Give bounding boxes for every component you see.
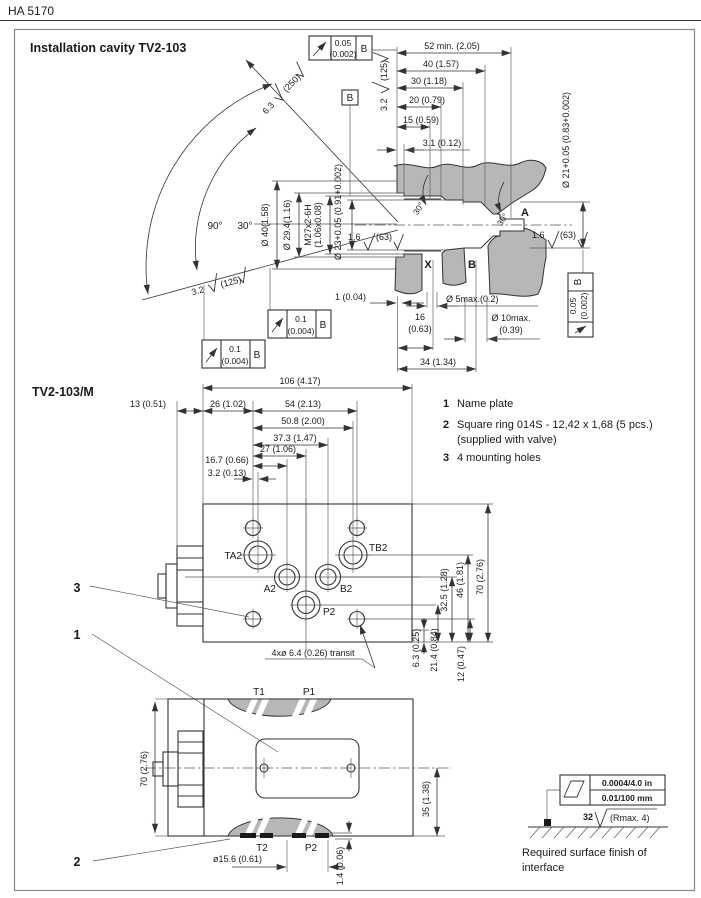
technical-drawing-page: HA 5170 Installation cavity TV2-103	[0, 0, 701, 898]
dim-30: 30 (1.18)	[411, 76, 447, 86]
callout-1: 1	[74, 628, 81, 642]
valve-body-outline	[203, 504, 412, 642]
doc-code: HA 5170	[8, 4, 54, 18]
cavity-lower-left-section	[395, 254, 422, 294]
dim-54: 54 (2.13)	[285, 399, 321, 409]
flatness-mm: 0.01/100 mm	[602, 793, 653, 803]
dim-214: 21.4 (0.84)	[429, 628, 439, 672]
port-p2b: P2	[305, 843, 318, 854]
callout-2: 2	[74, 855, 81, 869]
tol2-value-in: (0.004)	[222, 356, 249, 366]
port-t2: T2	[256, 843, 268, 854]
finish-32-value: 3.2	[379, 98, 389, 111]
dim-12: 12 (0.47)	[456, 646, 466, 682]
dim-46: 46 (1.81)	[455, 562, 465, 598]
finish-63b-value: (63)	[376, 232, 392, 242]
dim-14: 1.4 (0.06)	[335, 847, 345, 886]
port-circles	[244, 521, 367, 627]
runout-frame-right: B 0.05 (0.002)	[568, 273, 593, 337]
datum-b-flag: B	[342, 90, 358, 196]
port-ta2: TA2	[224, 551, 242, 562]
finish-16r-value: 1.6	[532, 230, 545, 240]
callout-3: 3	[74, 581, 81, 595]
dim-dia5: Ø 5max.(0.2)	[446, 294, 499, 304]
port-tb2: TB2	[369, 543, 388, 554]
notes-list: 1 Name plate 2 Square ring 014S - 12,42 …	[443, 398, 653, 464]
dim-52: 52 min. (2.05)	[424, 41, 480, 51]
runout-r-datum: B	[573, 278, 584, 285]
valve-front-view: T1 P1 T2 P2	[139, 687, 452, 885]
dim-167: 16.7 (0.66)	[205, 455, 249, 465]
roughness-32: 32	[583, 812, 593, 822]
dim-13: 13 (0.51)	[130, 399, 166, 409]
tolerance-frame-1: 0.1 (0.004) B	[268, 268, 331, 338]
note-2-text2: (supplied with valve)	[457, 434, 557, 446]
datum-b-label: B	[347, 93, 354, 104]
dim-26: 26 (1.02)	[210, 399, 246, 409]
dim-m27-line1: M27x2-6H	[303, 204, 313, 246]
runout-r-value: 0.05	[568, 297, 578, 314]
dim-63: 6.3 (0.25)	[411, 629, 421, 668]
transit-note: 4xø 6.4 (0.26) transit	[265, 625, 375, 668]
dim-1: 1 (0.04)	[335, 292, 366, 302]
note-1-text: Name plate	[457, 398, 513, 410]
runout-value-in: (0.002)	[330, 49, 357, 59]
note-1-num: 1	[443, 398, 449, 410]
dim-15: 15 (0.59)	[403, 115, 439, 125]
finish-16-value: 1.6	[348, 232, 361, 242]
angle-90-label: 90°	[207, 221, 222, 232]
dim-20: 20 (0.79)	[409, 95, 445, 105]
dim-3-1: 3.1 (0.12)	[423, 138, 462, 148]
dim-27: 27 (1.06)	[260, 444, 296, 454]
dim-dia10: Ø 10max.	[491, 313, 530, 323]
dim-m27-line2: (1.06x0.08)	[313, 202, 323, 248]
finish-caption-2: interface	[522, 862, 564, 874]
port-t1: T1	[253, 687, 265, 698]
dim-16-in: (0.63)	[408, 324, 432, 334]
dim-dia10-in: (0.39)	[499, 325, 523, 335]
ground-hatching	[530, 827, 660, 838]
tol2-value: 0.1	[229, 344, 241, 354]
tolerance-frame-2: 0.1 (0.004) B	[202, 285, 265, 368]
dim-508: 50.8 (2.00)	[281, 416, 325, 426]
bottom-port-boss: T2 P2	[228, 813, 333, 854]
dim-dia40: Ø 40(1.58)	[260, 203, 270, 246]
port-p2: P2	[323, 607, 336, 618]
finish-32-125-face: 3.2 (125)	[372, 53, 389, 112]
finish-32b-value: 3.2	[190, 284, 205, 297]
finish-63-250: 6.3 (250)	[255, 61, 308, 116]
note-3-text: 4 mounting holes	[457, 452, 541, 464]
front-plug-profile	[153, 731, 203, 807]
port-b2: B2	[340, 584, 353, 595]
side-plug-profile	[158, 546, 203, 626]
dim-dia23: Ø 23+0.05 (0.91+0.002)	[333, 164, 343, 260]
angle-30-label: 30°	[237, 221, 252, 232]
dim-front-70: 70 (2.76)	[139, 751, 149, 787]
dim-dia294: Ø 29.4(1.16)	[282, 200, 292, 251]
runout-r-value-in: (0.002)	[579, 292, 589, 319]
finish-125b-value: (125)	[219, 274, 242, 289]
port-x-label: X	[424, 259, 432, 271]
chamfer-30-label: 30°	[411, 200, 426, 216]
dim-325: 32.5 (1.28)	[439, 568, 449, 612]
page-header: HA 5170	[0, 4, 701, 891]
dim-40: 40 (1.57)	[423, 59, 459, 69]
finish-63-value: 6.3	[260, 100, 276, 116]
tol1-datum: B	[320, 320, 327, 331]
roughness-check-icon	[595, 809, 607, 827]
finish-63r-value: (63)	[560, 230, 576, 240]
runout-value: 0.05	[335, 38, 352, 48]
dim-70: 70 (2.76)	[475, 559, 485, 595]
dim-16: 16	[415, 312, 425, 322]
transit-text: 4xø 6.4 (0.26) transit	[271, 648, 355, 658]
dim-156: ø15.6 (0.61)	[213, 854, 262, 864]
tol2-datum: B	[254, 350, 261, 361]
dim-34: 34 (1.34)	[420, 357, 456, 367]
dim-35: 35 (1.38)	[421, 781, 431, 817]
flatness-in: 0.0004/4.0 in	[602, 778, 652, 788]
port-a2: A2	[264, 584, 277, 595]
dim-106: 106 (4.17)	[279, 376, 320, 386]
angle-construction: 90° 30°	[142, 60, 398, 300]
finish-125-value: (125)	[379, 60, 389, 81]
dim-dia21: Ø 21+0.05 (0.83+0.002)	[561, 92, 571, 188]
tol1-value-in: (0.004)	[288, 326, 315, 336]
valve-title: TV2-103/M	[32, 385, 94, 399]
cavity-lower-mid-section	[442, 248, 466, 285]
roughness-rmax: (Rmax. 4)	[610, 813, 650, 823]
top-port-boss: T1 P1	[228, 687, 331, 723]
cavity-title: Installation cavity TV2-103	[30, 41, 186, 55]
runout-datum: B	[361, 44, 368, 55]
surface-finish-block: 0.0004/4.0 in 0.01/100 mm 32 (Rmax. 4) R…	[522, 775, 668, 874]
note-2-num: 2	[443, 419, 449, 431]
port-p1: P1	[303, 687, 316, 698]
dim-32: 3.2 (0.13)	[208, 468, 247, 478]
note-3-num: 3	[443, 452, 449, 464]
cavity-drawing: Installation cavity TV2-103	[30, 36, 593, 372]
page-frame	[15, 30, 695, 891]
note-2-text: Square ring 014S - 12,42 x 1,68 (5 pcs.)	[457, 419, 653, 431]
dim-373: 37.3 (1.47)	[273, 433, 317, 443]
finish-caption-1: Required surface finish of	[522, 847, 648, 859]
finish-32-125-lower: 3.2 (125)	[189, 266, 250, 298]
tol1-value: 0.1	[295, 314, 307, 324]
finish-16-63-left: 1.6 (63)	[348, 232, 404, 250]
port-a-label: A	[521, 207, 529, 219]
port-crosshairs	[240, 518, 371, 629]
port-b-label: B	[468, 259, 476, 271]
front-dimensions: 70 (2.76) 35 (1.38) ø15.6 (0.61) 1.4 (0.…	[139, 699, 445, 885]
leader-anchor	[544, 819, 551, 826]
